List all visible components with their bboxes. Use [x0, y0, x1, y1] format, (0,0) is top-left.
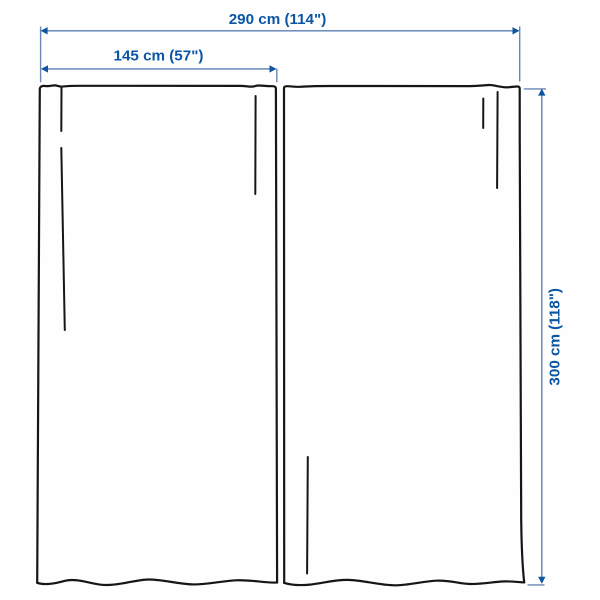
svg-text:300 cm (118"): 300 cm (118"): [547, 288, 564, 386]
svg-text:290 cm (114"): 290 cm (114"): [229, 11, 327, 28]
svg-text:145 cm (57"): 145 cm (57"): [114, 47, 204, 64]
